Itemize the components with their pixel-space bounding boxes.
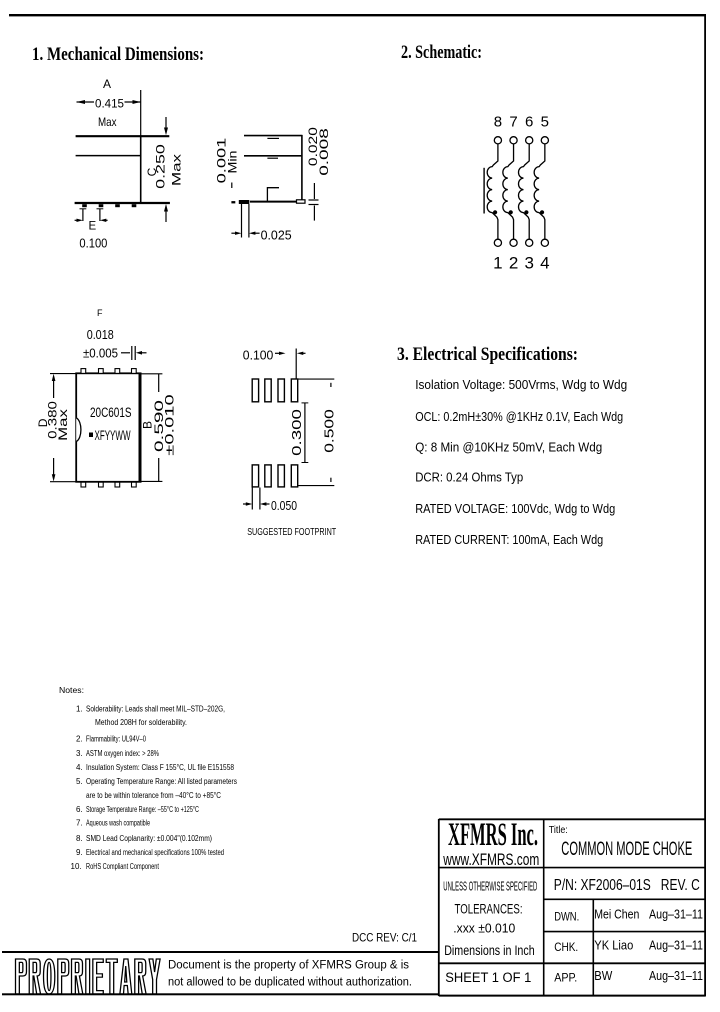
svg-text:OCL: 0.2mH±30% @1KHz 0.1V, Eac: OCL: 0.2mH±30% @1KHz 0.1V, Each Wdg — [415, 409, 623, 424]
svg-text:Q: 8 Min @10KHz 50mV, Each Wdg: Q: 8 Min @10KHz 50mV, Each Wdg — [415, 440, 602, 455]
svg-text:.xxx ±0.010: .xxx ±0.010 — [453, 921, 515, 936]
svg-text:Aug–31–11: Aug–31–11 — [649, 969, 703, 983]
svg-text:XFYYWW: XFYYWW — [95, 428, 131, 443]
svg-text:F: F — [97, 308, 103, 318]
svg-text:4.: 4. — [76, 763, 83, 772]
svg-text:BW: BW — [594, 969, 612, 983]
svg-text:0.050: 0.050 — [271, 499, 297, 513]
svg-text:2: 2 — [509, 254, 518, 273]
svg-text:SUGGESTED FOOTPRINT: SUGGESTED FOOTPRINT — [247, 526, 336, 538]
svg-text:9.: 9. — [76, 848, 83, 857]
svg-text:RoHS Compliant Component: RoHS Compliant Component — [86, 862, 160, 871]
svg-text:5.: 5. — [76, 777, 83, 786]
svg-text:0.100: 0.100 — [243, 349, 274, 363]
svg-text:COMMON MODE CHOKE: COMMON MODE CHOKE — [561, 839, 692, 860]
svg-text:3. Electrical Specifications:: 3. Electrical Specifications: — [397, 344, 578, 365]
svg-text:0.250: 0.250 — [154, 144, 168, 189]
svg-text:20C601S: 20C601S — [90, 405, 132, 420]
svg-text:±0.005: ±0.005 — [83, 347, 118, 361]
svg-text:0.100: 0.100 — [79, 237, 107, 251]
svg-text:0.500: 0.500 — [322, 409, 336, 453]
svg-text:UNLESS OTHERWISE SPECIFIED: UNLESS OTHERWISE SPECIFIED — [443, 879, 537, 894]
svg-text:RATED CURRENT: 100mA, Each Wdg: RATED CURRENT: 100mA, Each Wdg — [415, 532, 603, 547]
svg-text:Dimensions in Inch: Dimensions in Inch — [444, 942, 535, 958]
svg-text:Max: Max — [170, 154, 184, 186]
svg-text:7.: 7. — [76, 819, 83, 828]
svg-text:A: A — [103, 77, 111, 91]
svg-text:Aug–31–11: Aug–31–11 — [649, 939, 703, 953]
svg-text:not allowed to be duplicated w: not allowed to be duplicated without aut… — [168, 977, 412, 989]
svg-text:0.018: 0.018 — [87, 328, 114, 342]
svg-text:SMD Lead Coplanarity: ±0.004"(: SMD Lead Coplanarity: ±0.004"(0.102mm) — [86, 834, 212, 843]
svg-text:Max: Max — [56, 409, 70, 441]
svg-text:8: 8 — [494, 114, 502, 131]
svg-text:10.: 10. — [71, 862, 82, 871]
svg-text:Aug–31–11: Aug–31–11 — [649, 908, 703, 922]
svg-text:APP.: APP. — [554, 971, 577, 985]
svg-text:SHEET 1 OF 1: SHEET 1 OF 1 — [445, 970, 531, 985]
svg-text:Method 208H for solderability.: Method 208H for solderability. — [95, 718, 187, 727]
svg-text:0.415: 0.415 — [95, 97, 124, 111]
svg-text:Flammability: UL94V–0: Flammability: UL94V–0 — [86, 735, 146, 744]
svg-text:ASTM oxygen index: > 28%: ASTM oxygen index: > 28% — [86, 749, 159, 758]
svg-text:Insulation System: Class F 155: Insulation System: Class F 155°C, UL fil… — [86, 763, 234, 772]
svg-text:CHK.: CHK. — [554, 940, 578, 954]
svg-text:0.025: 0.025 — [261, 229, 292, 243]
svg-text:2. Schematic:: 2. Schematic: — [401, 42, 482, 63]
svg-text:1.: 1. — [76, 705, 83, 714]
svg-text:DCR: 0.24 Ohms Typ: DCR: 0.24 Ohms Typ — [415, 470, 523, 485]
svg-text:DCC REV: C/1: DCC REV: C/1 — [352, 931, 417, 945]
svg-text:6: 6 — [525, 114, 533, 131]
svg-text:1: 1 — [493, 254, 502, 273]
svg-text:5: 5 — [541, 114, 549, 131]
svg-text:6.: 6. — [76, 805, 83, 814]
svg-text:Document is the property of XF: Document is the property of XFMRS Group … — [168, 960, 409, 972]
svg-text:XFMRS Inc.: XFMRS Inc. — [448, 817, 538, 853]
svg-text:E: E — [89, 221, 97, 233]
svg-text:Max: Max — [98, 115, 117, 129]
svg-text:Mei Chen: Mei Chen — [594, 908, 639, 922]
svg-text:±0.010: ±0.010 — [162, 394, 176, 456]
svg-text:Storage Temperature Range: –55: Storage Temperature Range: –55°C to +125… — [86, 805, 199, 814]
svg-text:7: 7 — [509, 114, 517, 131]
svg-text:Isolation Voltage: 500Vrms, Wd: Isolation Voltage: 500Vrms, Wdg to Wdg — [415, 377, 627, 392]
svg-text:4: 4 — [540, 254, 549, 273]
svg-text:P/N: XF2006–01S REV. C: P/N: XF2006–01S REV. C — [554, 877, 700, 894]
svg-text:DWN.: DWN. — [554, 910, 579, 924]
svg-text:www.XFMRS.com: www.XFMRS.com — [443, 851, 540, 869]
svg-text:Solderability: Leads shall mee: Solderability: Leads shall meet MIL–STD–… — [86, 705, 225, 714]
svg-text:YK Liao: YK Liao — [594, 939, 633, 953]
svg-text:RATED VOLTAGE: 100Vdc, Wdg to: RATED VOLTAGE: 100Vdc, Wdg to Wdg — [415, 501, 615, 516]
svg-text:1. Mechanical Dimensions:: 1. Mechanical Dimensions: — [32, 44, 204, 65]
svg-text:3: 3 — [524, 254, 533, 273]
svg-text:8.: 8. — [76, 834, 83, 843]
svg-text:Notes:: Notes: — [59, 685, 84, 695]
svg-text:Operating Temperature Range: A: Operating Temperature Range: All listed … — [86, 777, 237, 786]
svg-text:Title:: Title: — [549, 824, 568, 836]
svg-text:Electrical and mechanical spec: Electrical and mechanical specifications… — [86, 848, 224, 857]
svg-text:3.: 3. — [76, 749, 83, 758]
svg-text:2.: 2. — [76, 735, 83, 744]
svg-text:Aqueous wash compatible: Aqueous wash compatible — [86, 819, 150, 828]
svg-text:0.008: 0.008 — [317, 128, 331, 176]
svg-text:TOLERANCES:: TOLERANCES: — [455, 902, 523, 917]
svg-text:are to be within tolerance fro: are to be within tolerance from –40°C to… — [86, 791, 221, 800]
svg-text:0.300: 0.300 — [290, 409, 304, 456]
svg-text:Min: Min — [226, 151, 240, 174]
